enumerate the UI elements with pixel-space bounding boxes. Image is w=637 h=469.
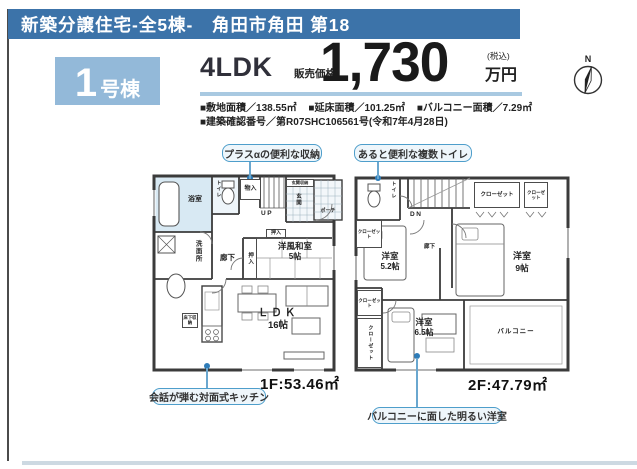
unit-suffix: 号棟 (100, 79, 140, 101)
room-label-closet-1f: 押入 (243, 238, 257, 279)
page-edge-line (7, 9, 9, 461)
room-label-bath: 浴室 (182, 196, 208, 204)
room-label-room-a: 洋室 (366, 252, 414, 261)
room-label-washitsu-size: 5帖 (258, 253, 332, 262)
room-label-storage: 物入 (240, 179, 261, 200)
room-label-toilet-1f: トイレ (215, 180, 221, 198)
room-label-room-b-size: 9帖 (498, 264, 546, 273)
spec-permit-number: ■建築確認番号／第R07SHC106561号(令和7年4月28日) (200, 117, 448, 128)
room-label-ldk: ＬＤＫ (242, 308, 314, 320)
closet-corner: クローゼット (524, 182, 548, 208)
compass-n-label: N (585, 54, 592, 64)
room-label-room-b: 洋室 (498, 252, 546, 262)
room-label-porch: ポーチ (314, 209, 342, 215)
room-label-ldk-size: 16帖 (242, 321, 314, 331)
callout-bright-room: バルコニーに面した明るい洋室 (372, 407, 502, 424)
floorplan-1f: 浴室 洗面所 トイレ 廊下 物入 UP 玄関収納 玄関 ポーチ 押入 押入 洋風… (146, 168, 346, 378)
room-label-hall-1f: 廊下 (220, 254, 235, 262)
connector-bright-room (416, 358, 418, 408)
stairs-up-label: UP (261, 210, 273, 217)
closet-left-top: クローゼット (356, 220, 382, 248)
unit-badge: 1 号棟 (55, 57, 160, 105)
area-label-2f: 2F:47.79㎡ (468, 374, 548, 395)
bottom-bar (22, 461, 637, 465)
stairs-down-label: DN (410, 211, 422, 218)
compass-icon: N (566, 50, 610, 100)
spec-line-2: ■建築確認番号／第R07SHC106561号(令和7年4月28日) (200, 113, 457, 128)
room-label-balcony: バルコニー (476, 328, 556, 335)
room-label-toilet-2f: トイレ (390, 181, 396, 199)
connector-storage (249, 161, 251, 179)
header-underline (200, 92, 522, 96)
connector-toilet (377, 161, 379, 179)
closet-bottom-small: クローゼット (357, 290, 382, 316)
room-label-room-c-size: 6.5帖 (400, 329, 448, 338)
callout-toilet: あると便利な複数トイレ (354, 144, 472, 162)
room-label-floor-storage: 床下収納 (182, 313, 198, 328)
callout-storage: プラスαの便利な収納 (222, 144, 322, 162)
room-label-entrance: 玄関 (295, 193, 301, 206)
area-label-1f: 1F:53.46㎡ (260, 373, 340, 394)
room-label-closet-small-1f: 押入 (266, 229, 286, 238)
spec-line-1: ■敷地面積／138.55㎡ ■延床面積／101.25㎡ ■バルコニー面積／7.2… (200, 99, 541, 114)
price-unit: 万円 (485, 61, 517, 85)
closet-bottom-tall: クローゼット (357, 318, 382, 368)
callout-kitchen: 会話が弾む対面式キッチン (152, 388, 266, 405)
connector-kitchen (206, 368, 208, 389)
flyer-page: 新築分譲住宅-全5棟- 角田市角田 第18 1 号棟 4LDK 販売価格 1,7… (0, 0, 637, 469)
room-label-washroom: 洗面所 (194, 240, 201, 263)
room-label-washitsu: 洋風和室 (258, 242, 332, 251)
room-label-entrance-storage: 玄関収納 (286, 179, 314, 187)
room-label-room-c: 洋室 (400, 318, 448, 327)
floorplan-2f: トイレ DN クローゼット クローゼット クローゼット 廊下 洋室 5.2帖 洋… (352, 168, 572, 378)
layout-type: 4LDK (200, 52, 273, 83)
room-label-room-a-size: 5.2帖 (366, 263, 414, 272)
unit-number: 1 (75, 65, 97, 101)
closet-top-wide: クローゼット (474, 182, 520, 208)
room-label-hall-2f: 廊下 (424, 244, 435, 250)
price-amount: 1,730 (320, 36, 448, 88)
